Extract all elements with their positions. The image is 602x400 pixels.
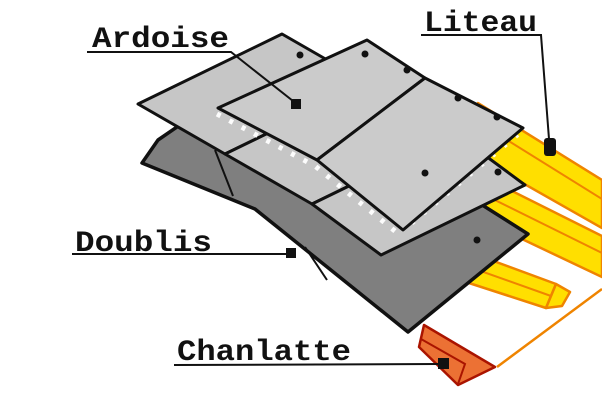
nail-hole-upper-5 bbox=[422, 170, 429, 177]
ardoise-target-marker bbox=[291, 99, 301, 109]
nail-hole-lower-1 bbox=[297, 52, 304, 59]
chanlatte-piece bbox=[419, 325, 495, 385]
roofing-diagram-canvas: Ardoise Liteau Doublis Chanlatte bbox=[0, 0, 602, 400]
nail-hole-doublis bbox=[474, 237, 481, 244]
doublis-label-text: Doublis bbox=[75, 227, 212, 261]
liteau-target-marker bbox=[544, 138, 556, 156]
doublis-target-marker bbox=[286, 248, 296, 258]
label-chanlatte: Chanlatte bbox=[174, 336, 449, 370]
nail-hole-upper-1 bbox=[362, 51, 369, 58]
nail-hole-upper-2 bbox=[404, 67, 411, 74]
chanlatte-target-marker bbox=[438, 358, 449, 369]
label-doublis: Doublis bbox=[72, 227, 296, 261]
nail-hole-upper-4 bbox=[494, 114, 501, 121]
roofing-diagram: Ardoise Liteau Doublis Chanlatte bbox=[0, 0, 602, 400]
nail-hole-upper-3 bbox=[455, 95, 462, 102]
chanlatte-leader-line bbox=[174, 364, 439, 365]
nail-hole-lower-2 bbox=[495, 169, 502, 176]
chanlatte-body bbox=[419, 325, 495, 385]
